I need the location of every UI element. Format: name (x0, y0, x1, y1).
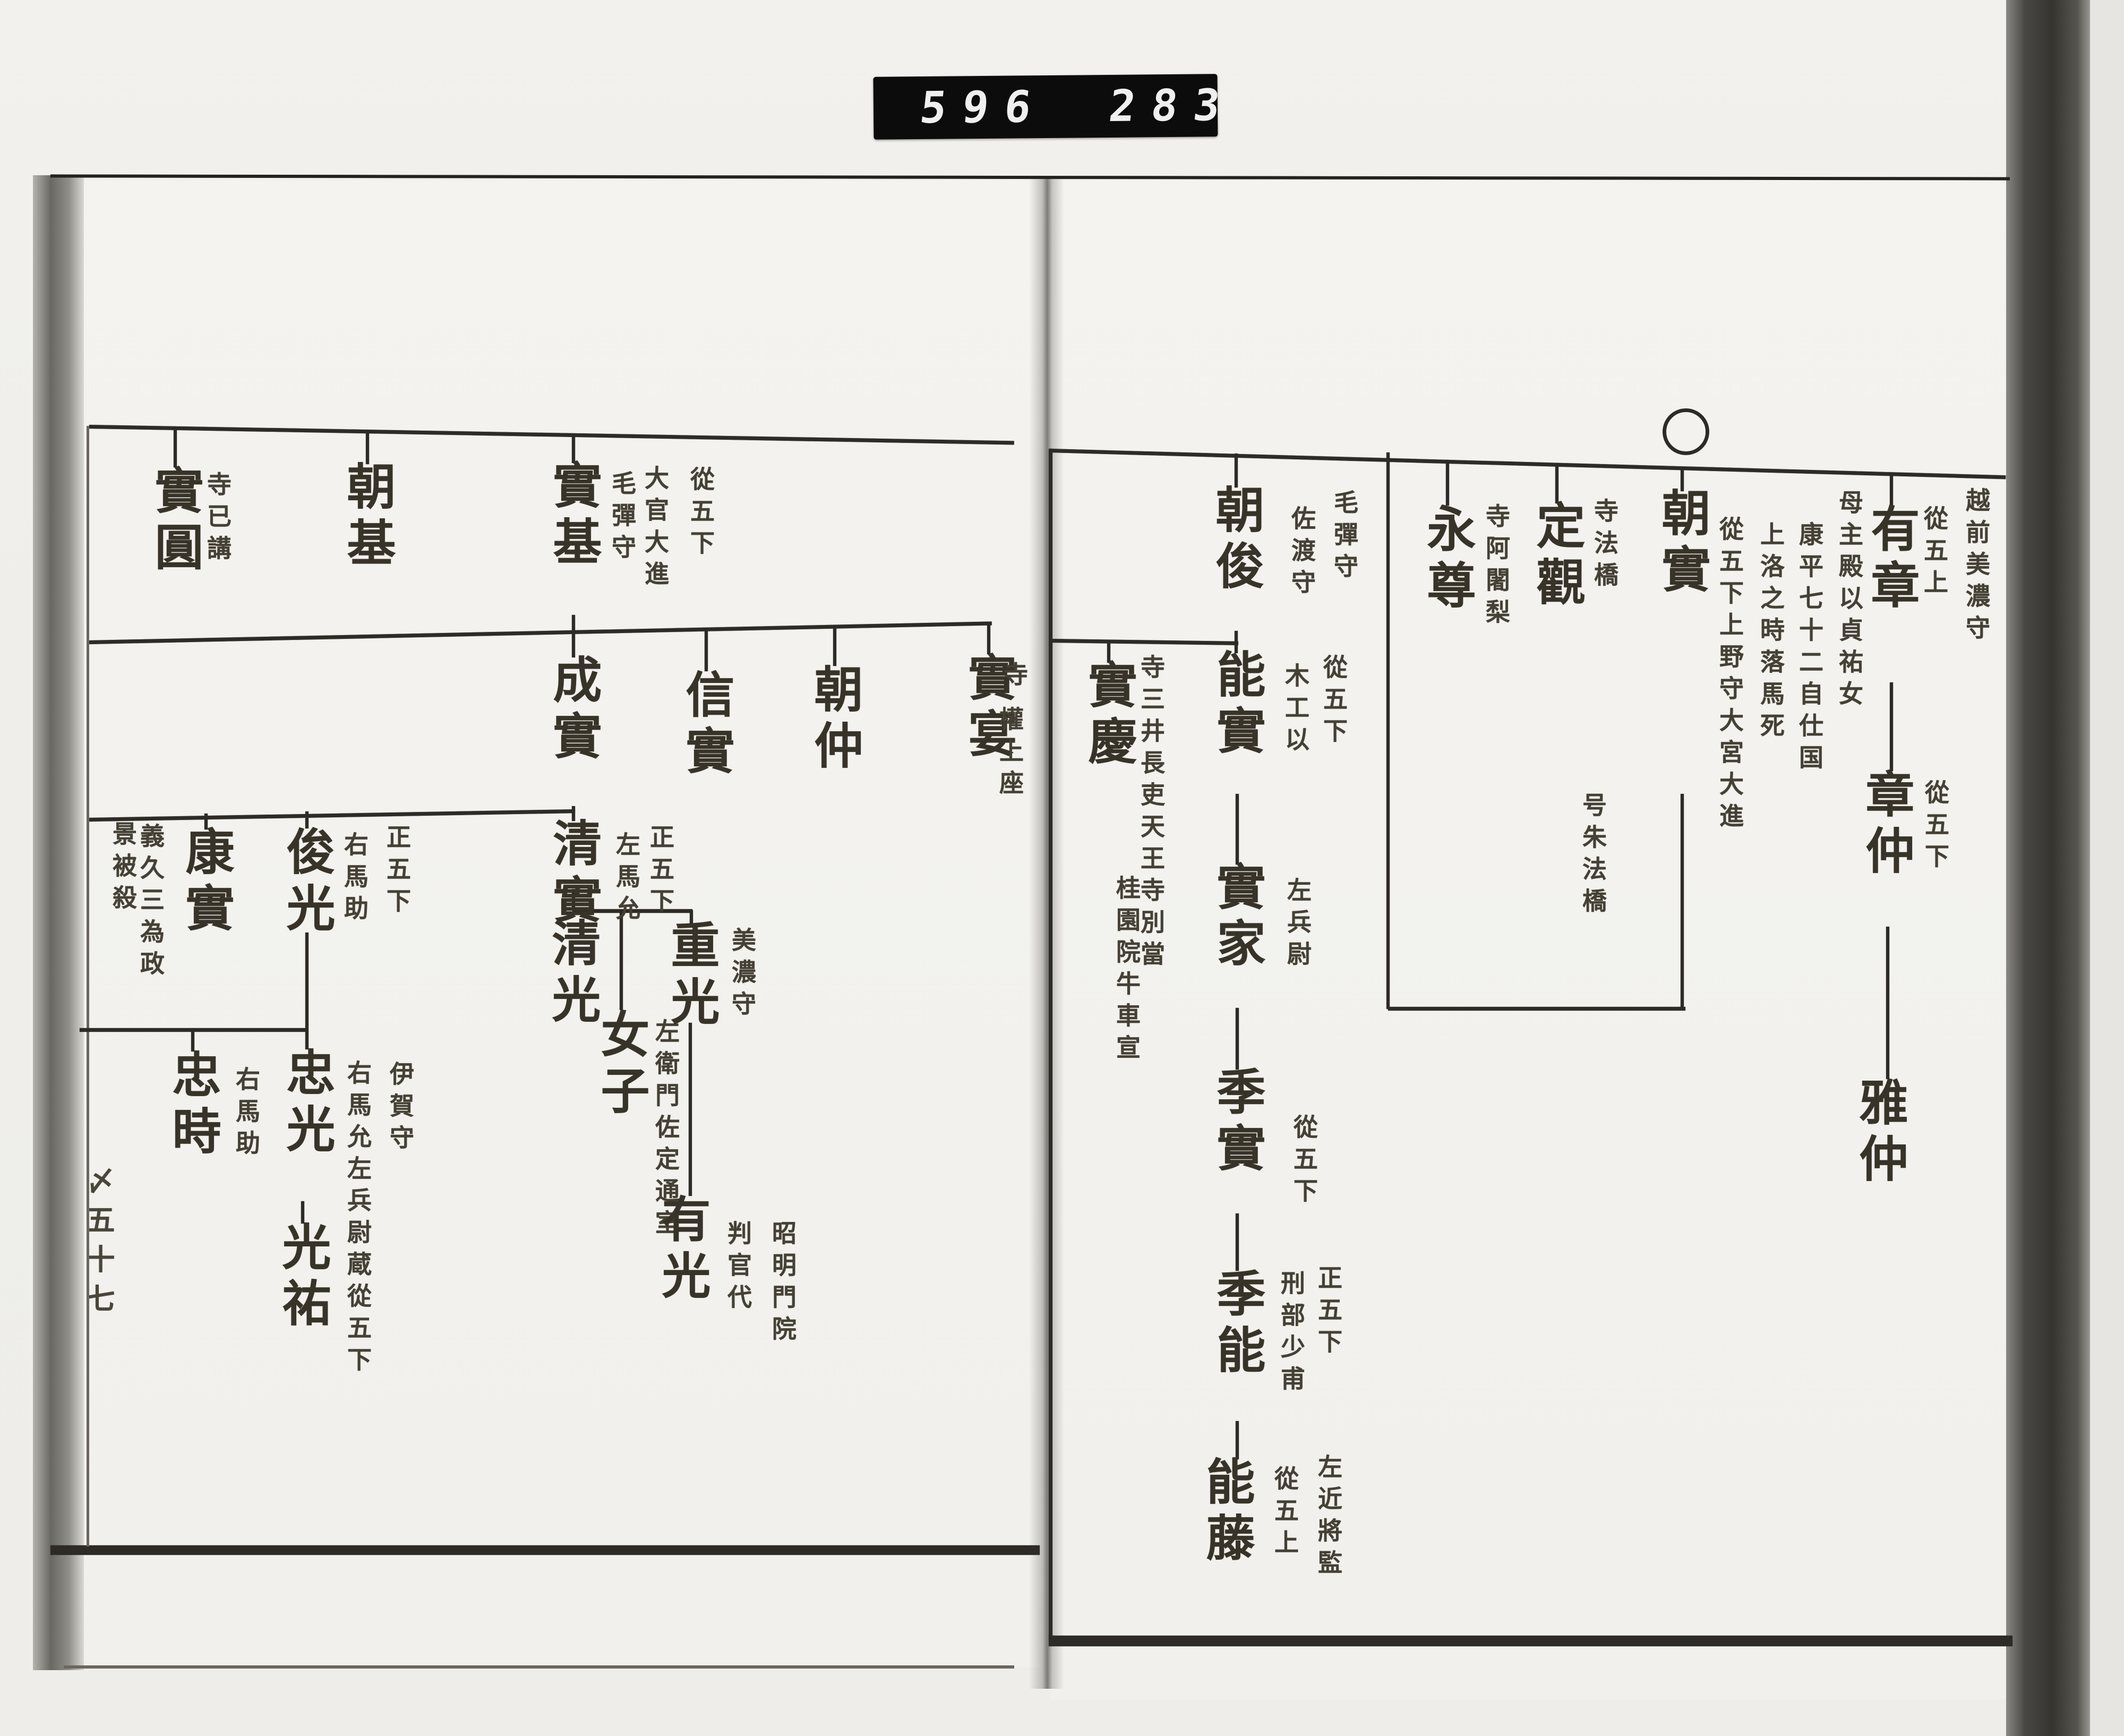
person-tomotoshi: 朝俊 (1212, 484, 1261, 597)
person-jikkei: 實慶 (1084, 660, 1133, 772)
annotation-arisho: 母主殿以貞祐女 (1837, 490, 1862, 713)
annotation-toshimitsu: 正五下 (385, 824, 409, 920)
annotation-tomotoshi: 毛彈守 (1332, 490, 1357, 585)
connector-line (50, 1545, 1040, 1555)
annotation-tadamitsu: 右馬允左兵尉蔵從五下 (346, 1060, 370, 1379)
scan-background-strip (2090, 0, 2124, 1736)
counter-left-digits: 596 (918, 81, 1050, 133)
connector-line (705, 631, 708, 671)
connector-line (305, 1029, 309, 1049)
annotation-saneie: 左兵尉 (1286, 877, 1310, 973)
connector-line (1235, 454, 1238, 488)
annotation-eison: 寺阿闍梨 (1484, 503, 1509, 631)
annotation-jikkei: 寺三井長吏天王寺別當 (1139, 654, 1163, 973)
connector-line (1236, 1213, 1239, 1271)
connector-line (1236, 1008, 1239, 1070)
annotation-jokan: 号朱法橋 (1581, 792, 1605, 920)
connector-line (1890, 474, 1893, 507)
person-tadamitsu: 忠光 (282, 1047, 331, 1160)
annotation-kiyozane: 正五下 (648, 824, 673, 920)
annotation-sueyoshi: 刑部少甫 (1279, 1270, 1304, 1398)
connector-line (1886, 927, 1889, 1079)
person-arisho: 有章 (1867, 503, 1916, 616)
annotation-tadamitsu: 伊賀守 (388, 1061, 413, 1157)
book-left-edge (33, 175, 84, 1670)
right-page (1050, 181, 2006, 1699)
scanned-genealogy-spread: 596 283 〆五十七 實圓寺已講朝基實基從五下大官大進毛彈守成實信實朝仲實宴… (0, 0, 2124, 1736)
connector-line (987, 622, 990, 654)
annotation-jitsuen2: 寺 (1002, 662, 1026, 694)
book-gutter-fold (1029, 178, 1064, 1689)
connector-line (1681, 794, 1684, 1009)
annotation-shigemitsu: 美濃守 (730, 927, 755, 1023)
connector-line (1049, 1636, 2012, 1646)
person-tomomoto: 朝基 (343, 461, 392, 574)
connector-line (1386, 452, 1390, 1009)
annotation-jitsuen: 寺已講 (205, 472, 230, 567)
connector-line (1236, 794, 1239, 865)
connector-line (301, 1201, 304, 1224)
person-eison: 永尊 (1423, 503, 1472, 616)
annotation-yasuzane: 義久三為政 (139, 823, 163, 982)
connector-line (64, 1665, 1014, 1669)
annotation-yoshifuji: 從五上 (1273, 1466, 1297, 1561)
annotation-toshimitsu: 右馬助 (342, 832, 367, 927)
counter-right-digits: 283 (1107, 80, 1239, 131)
person-jitsuen: 實圓 (151, 465, 200, 578)
continuation-circle-mark (1663, 408, 1709, 455)
person-mitsusuke: 光祐 (278, 1221, 327, 1334)
connector-line (1388, 1007, 1685, 1011)
connector-line (366, 432, 369, 464)
annotation-arisho: 越前美濃守 (1964, 488, 1989, 647)
connector-line (572, 435, 575, 463)
person-jokan: 定觀 (1532, 500, 1581, 613)
person-tadatoki: 忠時 (168, 1049, 217, 1162)
connector-line (572, 615, 575, 657)
annotation-arisho: 上洛之時落馬死 (1759, 521, 1783, 745)
person-akinaka: 章仲 (1862, 769, 1911, 882)
annotation-jitsuen2: 權上座 (998, 706, 1022, 802)
person-kiyozane: 清實 (549, 818, 598, 930)
annotation-tomozane: 從五下上野守大宮大進 (1718, 516, 1742, 835)
person-saneie: 實家 (1213, 861, 1262, 974)
person-sanemoto: 實基 (549, 460, 598, 572)
annotation-tomotoshi: 佐渡守 (1290, 506, 1314, 601)
annotation-akinaka: 從五下 (1923, 780, 1948, 875)
person-yasuzane: 康實 (182, 826, 230, 939)
annotation-arisho: 從五上 (1922, 506, 1947, 601)
connector-line (1236, 1421, 1239, 1459)
annotation-yoshizane: 從五下 (1322, 654, 1346, 750)
person-masanaka: 雅仲 (1855, 1077, 1904, 1190)
person-shigemitsu: 重光 (667, 920, 716, 1032)
annotation-yasuzane: 景被殺 (111, 821, 135, 917)
person-yoshizane: 能實 (1213, 649, 1262, 762)
annotation-sanemoto: 大官大進 (643, 465, 667, 593)
annotation-arisho: 康平七十二自仕国 (1797, 521, 1822, 776)
person-suezane: 季實 (1213, 1066, 1262, 1179)
connector-line (1555, 463, 1558, 503)
connector-line (833, 628, 836, 666)
person-nobuzane: 信實 (682, 669, 731, 782)
annotation-arimitsu: 昭明門院 (770, 1220, 795, 1348)
person-arimitsu: 有光 (658, 1194, 707, 1306)
connector-line (305, 933, 309, 1029)
person-tomozane: 朝實 (1658, 488, 1707, 600)
annotation-sanemoto: 從五下 (689, 466, 713, 562)
annotation-kiyozane: 左馬允 (614, 832, 639, 927)
connector-line (689, 1023, 692, 1196)
annotation-suezane: 從五下 (1292, 1114, 1316, 1210)
person-sueyoshi: 季能 (1213, 1268, 1262, 1381)
annotation-sanemoto: 毛彈守 (610, 471, 635, 566)
person-kiyomitsu: 清光 (548, 918, 597, 1030)
connector-line (191, 1029, 194, 1051)
connector-line (1049, 449, 1052, 1641)
annotation-yoshizane: 木工以 (1283, 663, 1308, 758)
annotation-jikkei: 桂園院牛車宣 (1115, 875, 1139, 1066)
person-tomonaka: 朝仲 (810, 664, 859, 776)
annotation-sueyoshi: 正五下 (1316, 1265, 1341, 1361)
annotation-arimitsu: 判官代 (726, 1220, 750, 1316)
connector-line (1446, 460, 1449, 506)
person-narizane: 成實 (549, 654, 598, 767)
connector-line (174, 429, 177, 467)
annotation-yoshifuji: 左近將監 (1316, 1454, 1341, 1581)
annotation-jokan: 寺法橋 (1592, 498, 1617, 594)
person-onnago: 女子 (597, 1009, 646, 1122)
person-yoshifuji: 能藤 (1202, 1456, 1251, 1569)
frame-counter-label: 596 283 (873, 74, 1218, 140)
connector-line (1890, 682, 1893, 771)
book-right-edge (2006, 0, 2090, 1736)
person-toshimitsu: 俊光 (282, 826, 331, 939)
connector-line (87, 426, 89, 1546)
annotation-tadatoki: 右馬助 (234, 1066, 259, 1162)
